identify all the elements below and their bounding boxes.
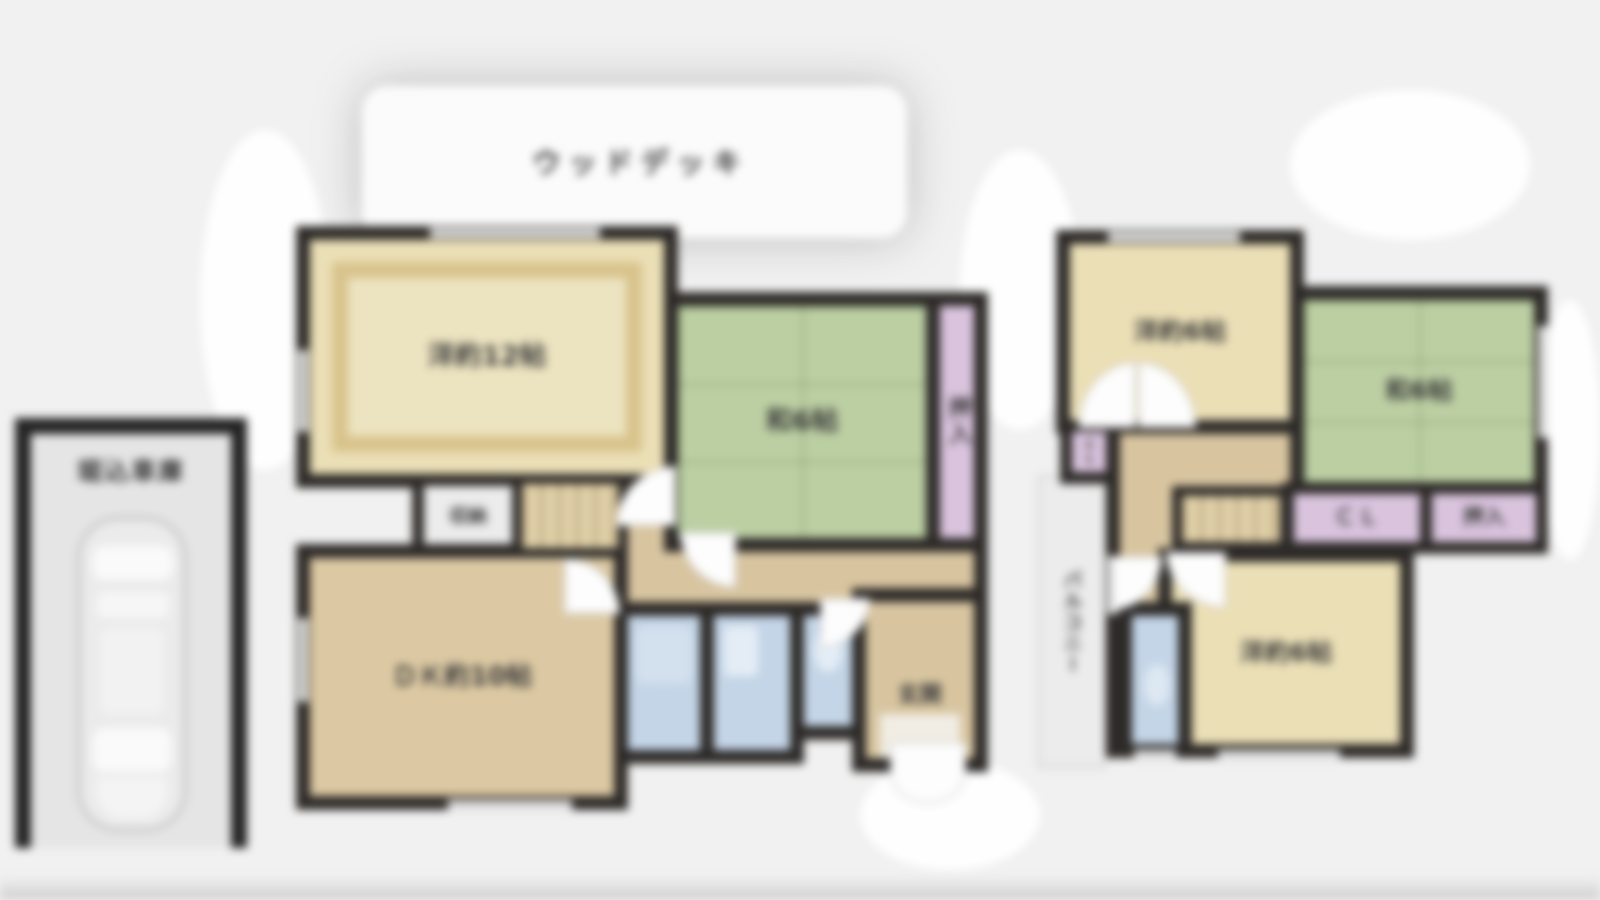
f2-japanese-room-label: 和6帖 xyxy=(1385,377,1452,405)
f1-oshiire-label: 押入 xyxy=(940,396,974,448)
f2-closet-cl: ＣＬ xyxy=(1282,482,1434,554)
window xyxy=(430,228,600,238)
f1-washroom xyxy=(700,602,804,764)
f2-closet-cl-label: ＣＬ xyxy=(1334,506,1382,529)
floor-plan-canvas: ウッドデッキ 堀込車庫 洋約12帖 和6帖 押入 収納 ＤＫ約10帖 xyxy=(0,0,1600,900)
window xyxy=(448,800,572,810)
f2-balcony: バルコニー xyxy=(1038,476,1106,768)
f1-storage-label: 収納 xyxy=(449,506,487,527)
garage-label: 堀込車庫 xyxy=(31,458,231,486)
f1-japanese-room: 和6帖 xyxy=(664,292,940,552)
f2-stairs xyxy=(1172,486,1290,552)
f1-bathtub xyxy=(636,626,692,684)
f2-western-room-upper-label: 洋約6帖 xyxy=(1134,318,1226,346)
f2-balcony-label: バルコニー xyxy=(1059,570,1086,675)
car-rear-window xyxy=(93,728,171,772)
window xyxy=(1538,326,1548,438)
f1-sink xyxy=(724,626,758,676)
f2-toilet xyxy=(1118,602,1192,758)
car-roof xyxy=(97,592,169,618)
car-cabin xyxy=(101,628,163,714)
f1-bathroom xyxy=(614,602,714,764)
f2-toilet-bowl xyxy=(1144,664,1170,706)
door-swing-icon xyxy=(890,742,966,804)
wood-deck-label: ウッドデッキ xyxy=(440,148,840,180)
window xyxy=(298,618,308,702)
f1-wall-segment xyxy=(974,540,988,602)
car-trunk xyxy=(97,778,167,818)
f2-oshiire: 押入 xyxy=(1420,482,1548,554)
f2-japanese-room: 和6帖 xyxy=(1290,286,1548,496)
window xyxy=(298,350,308,432)
f1-western-room-label: 洋約12帖 xyxy=(428,342,547,372)
f1-stairs xyxy=(512,474,628,558)
car-top-view-icon xyxy=(77,516,187,832)
f1-oshiire: 押入 xyxy=(926,292,988,552)
f2-closet-small-label: CL xyxy=(1083,438,1097,466)
f1-dining-kitchen-label: ＤＫ約10帖 xyxy=(392,663,532,692)
f1-entrance-label: 玄関 xyxy=(866,684,974,708)
window xyxy=(1218,750,1340,760)
f2-western-room-lower-label: 洋約6帖 xyxy=(1240,639,1332,667)
garage: 堀込車庫 xyxy=(15,418,247,848)
f2-oshiire-label: 押入 xyxy=(1463,506,1505,529)
window xyxy=(1108,232,1240,242)
f1-western-room: 洋約12帖 xyxy=(296,226,678,488)
white-flare xyxy=(1290,90,1530,240)
f1-japanese-room-label: 和6帖 xyxy=(766,407,839,437)
ground-shadow-band xyxy=(0,876,1600,900)
white-flare xyxy=(1540,300,1600,560)
window xyxy=(1134,750,1176,760)
car-windshield xyxy=(93,546,173,580)
